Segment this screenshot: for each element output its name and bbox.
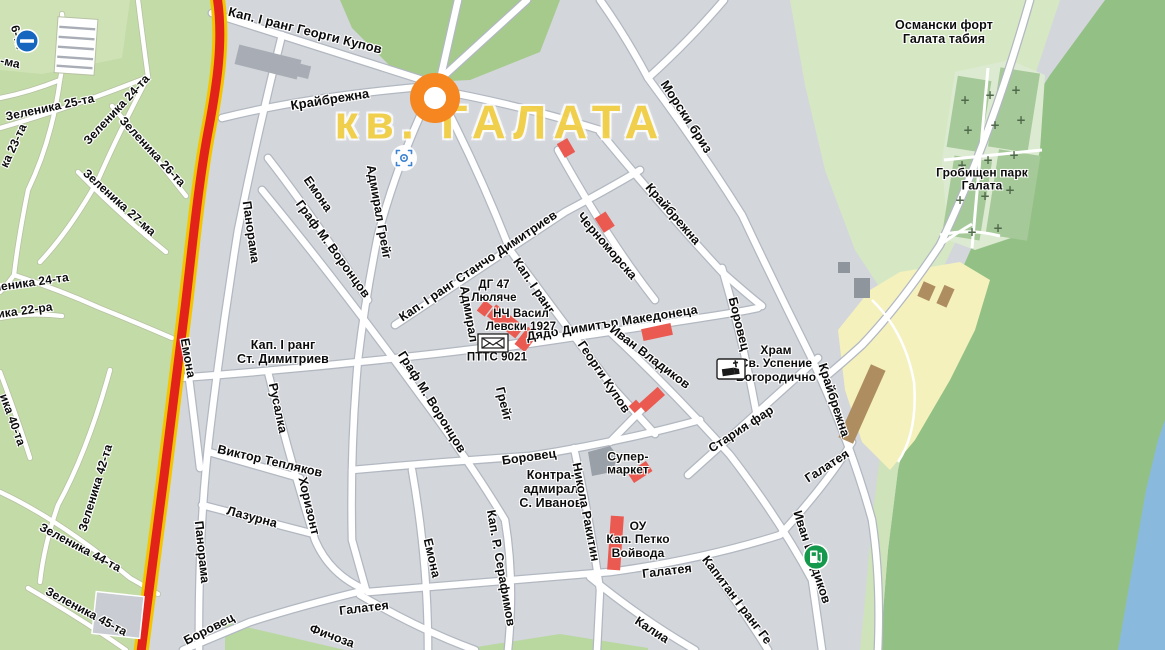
no-entry-sign-icon[interactable] xyxy=(15,29,40,54)
church-icon[interactable] xyxy=(716,358,746,380)
ev-charging-station-icon[interactable] xyxy=(803,544,830,571)
map-canvas[interactable]: +++ +++ +++ +++ ++ кв. ГАЛАТА Кап. І ран… xyxy=(0,0,1165,650)
street-view-camera-icon[interactable] xyxy=(391,145,418,172)
poi-layer xyxy=(0,0,1165,650)
post-office-icon[interactable] xyxy=(477,333,509,353)
route-marker-icon[interactable] xyxy=(409,72,461,124)
